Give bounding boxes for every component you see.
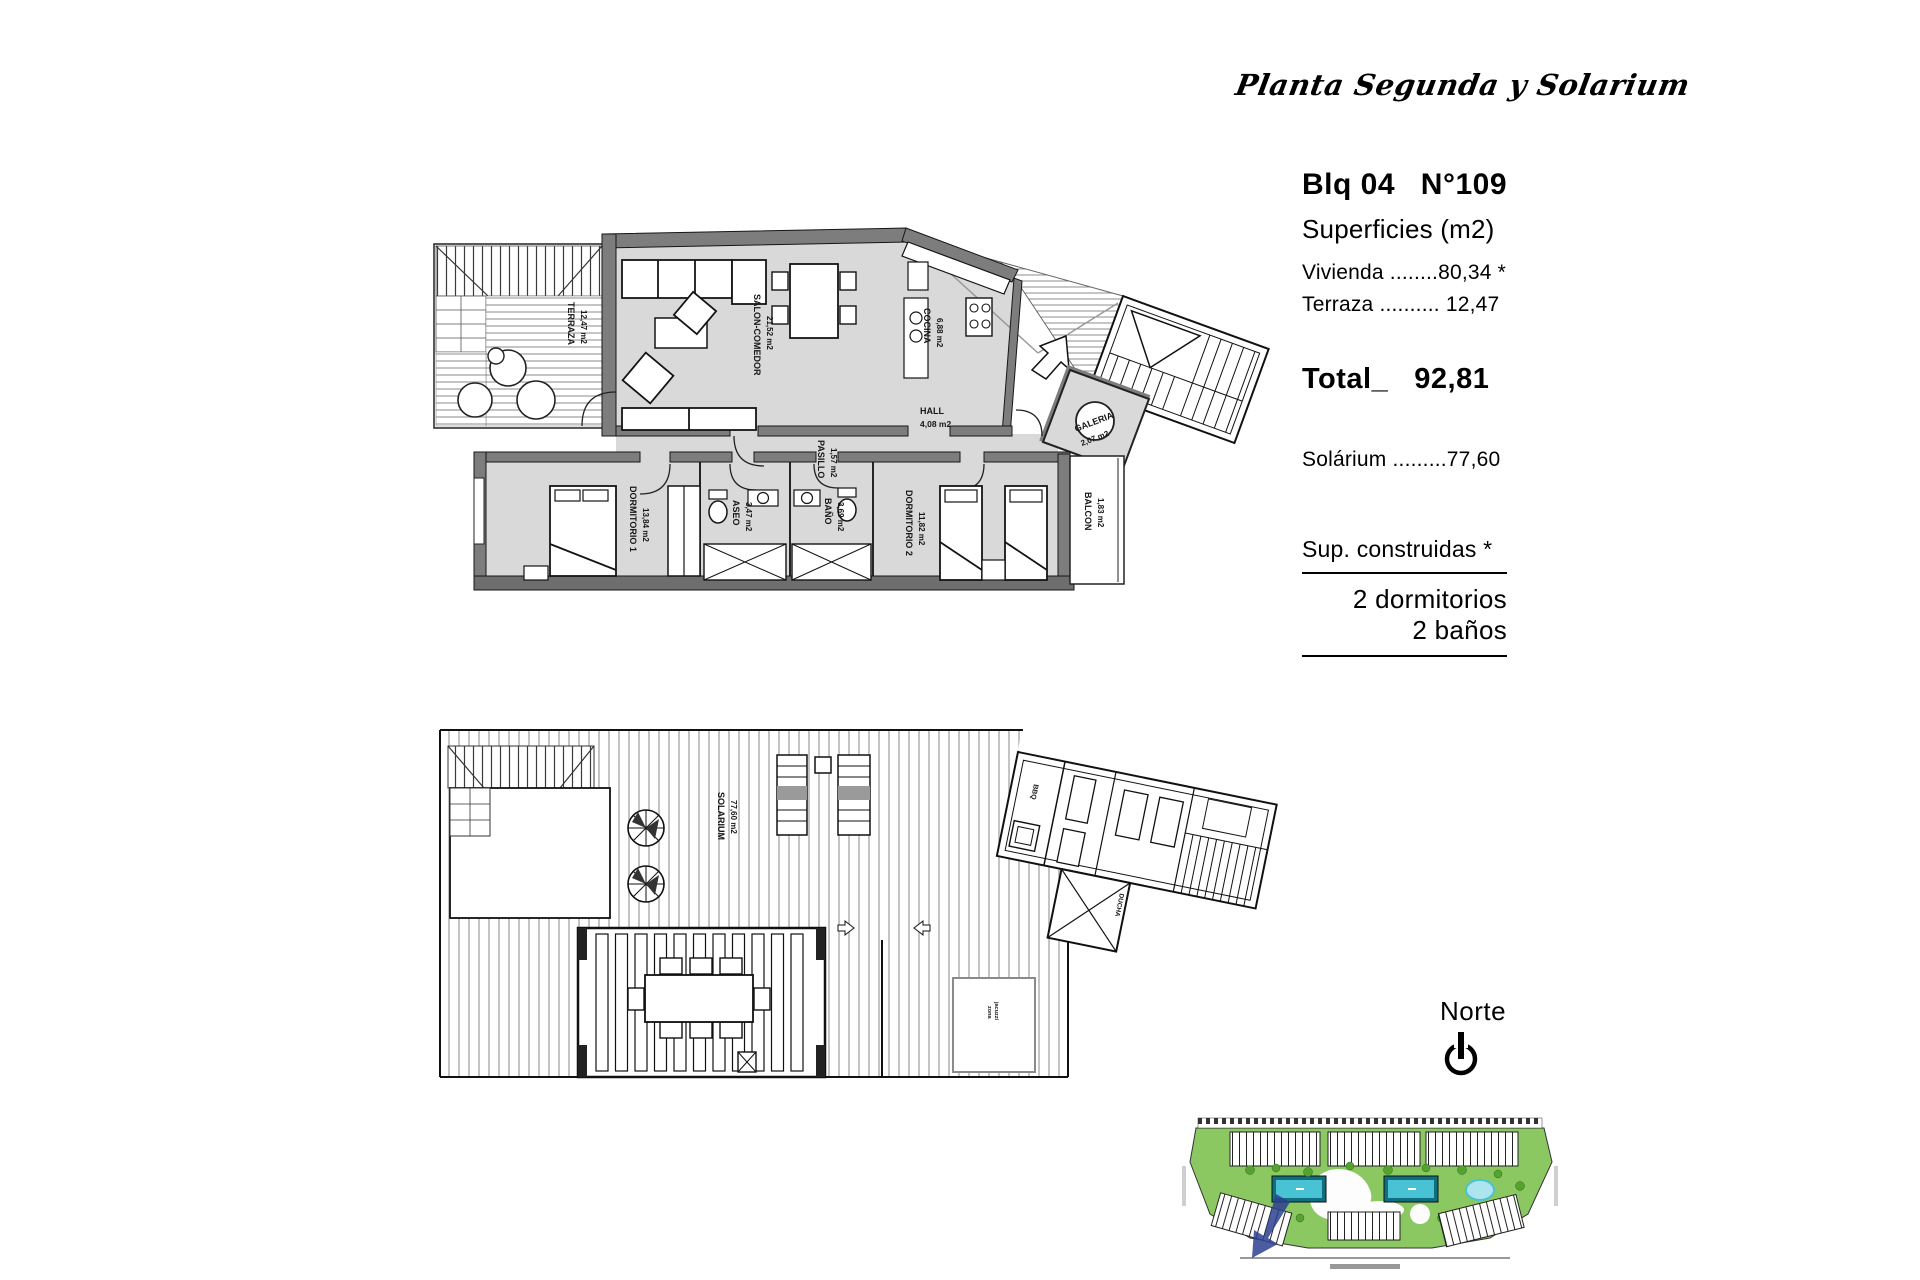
site-buildings-top xyxy=(1230,1132,1518,1166)
room-label-balcon: BALCON xyxy=(1083,492,1093,531)
room-area-aseo: 3,47 m2 xyxy=(744,502,753,532)
site-buildings-center xyxy=(1328,1212,1400,1240)
room-label-dormitorio2: DORMITORIO 2 xyxy=(904,490,914,556)
room-label-dormitorio1: DORMITORIO 1 xyxy=(628,486,638,552)
room-area-pasillo: 1,57 m2 xyxy=(829,448,838,478)
room-label-pasillo: PASILLO xyxy=(816,440,826,478)
total-value: 92,81 xyxy=(1414,363,1489,396)
room-terraza xyxy=(434,244,604,428)
window-dorm1 xyxy=(474,478,484,544)
room-label-terraza: TERRAZA xyxy=(566,302,576,345)
room-area-solarium: 77,60 m2 xyxy=(729,800,738,834)
jacuzzi-label-1: zona xyxy=(986,1006,992,1019)
under-roof-room xyxy=(450,788,610,918)
room-area-dormitorio1: 13,84 m2 xyxy=(641,508,650,542)
sheet-title: Planta Segunda y Solarium xyxy=(1233,68,1599,102)
room-area-salon: 21,52 m2 xyxy=(765,316,774,350)
room-area-bano: 3,69 m2 xyxy=(836,502,845,532)
street-name-smudge xyxy=(1330,1264,1400,1269)
block-unit-row: Blq 04 N°109 xyxy=(1302,168,1507,202)
north-arrow-icon xyxy=(1440,1027,1484,1081)
pergola xyxy=(578,928,825,1077)
total-row: Total_ 92,81 xyxy=(1302,363,1507,396)
terraza-row: Terraza .......... 12,47 xyxy=(1302,293,1507,317)
room-area-hall: 4,08 m2 xyxy=(920,419,951,429)
room-label-hall: HALL xyxy=(920,406,944,416)
entrance-arrow-icon xyxy=(1032,336,1069,379)
room-area-terraza: 12,47 m2 xyxy=(579,310,588,344)
room-area-dormitorio2: 11,82 m2 xyxy=(917,512,926,546)
bathrooms-line: 2 baños xyxy=(1302,615,1507,657)
construidas-note: Sup. construidas * xyxy=(1302,536,1507,574)
room-area-cocina: 6,88 m2 xyxy=(935,318,944,348)
room-label-bano: BAÑO xyxy=(823,498,833,525)
solarium-row: Solárium .........77,60 xyxy=(1302,448,1507,472)
vivienda-row: Vivienda ........80,34 * xyxy=(1302,261,1507,285)
jacuzzi-label-2: jacuzzi xyxy=(993,1001,999,1021)
ducha-box: DUCHA xyxy=(1048,869,1131,952)
room-label-salon: SALON-COMEDOR xyxy=(752,294,762,376)
palm-plant-2 xyxy=(628,866,664,902)
room-area-balcon: 1,83 m2 xyxy=(1096,498,1105,528)
room-label-cocina: COCINA xyxy=(922,308,932,344)
jacuzzi-zone: zona jacuzzi xyxy=(953,978,1035,1072)
solarium-stairs xyxy=(448,746,594,788)
upper-floor-plan: TERRAZA 12,47 m2 SALON-COMEDOR 21,52 m2 … xyxy=(418,178,1278,598)
palm-plant-1 xyxy=(628,810,664,846)
total-label: Total_ xyxy=(1302,363,1388,396)
site-roof-row xyxy=(1198,1118,1542,1128)
info-panel: Blq 04 N°109 Superficies (m2) Vivienda .… xyxy=(1302,168,1507,657)
room-label-aseo: ASEO xyxy=(731,500,741,526)
north-indicator: Norte xyxy=(1440,996,1550,1086)
north-label: Norte xyxy=(1440,996,1550,1027)
bedrooms-line: 2 dormitorios xyxy=(1302,584,1507,615)
lower-floor-plan: zona jacuzzi BBQ DUCHA SOL xyxy=(418,700,1278,1110)
unit-label: N°109 xyxy=(1421,168,1507,202)
block-label: Blq 04 xyxy=(1302,168,1395,202)
surfaces-heading: Superficies (m2) xyxy=(1302,214,1507,245)
site-plan xyxy=(1180,1106,1560,1276)
side-street-left xyxy=(1182,1166,1186,1206)
side-street-right xyxy=(1554,1166,1558,1206)
room-label-solarium: SOLARIUM xyxy=(716,792,726,840)
